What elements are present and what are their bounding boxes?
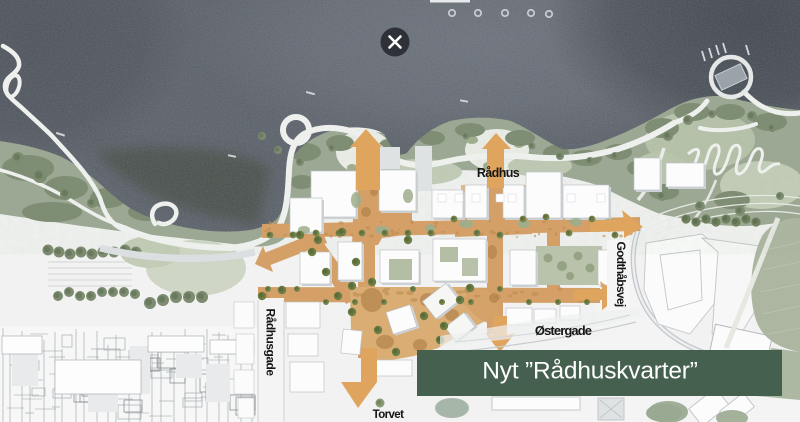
svg-text:Torvet: Torvet [373,409,404,421]
svg-text:Østergade: Østergade [535,323,592,338]
svg-text:Godthåbsvej: Godthåbsvej [614,242,628,307]
svg-text:Nyt ”Rådhuskvarter”: Nyt ”Rådhuskvarter” [482,358,697,385]
svg-text:Rådhusgade: Rådhusgade [264,308,278,376]
svg-text:Rådhus: Rådhus [477,166,520,180]
